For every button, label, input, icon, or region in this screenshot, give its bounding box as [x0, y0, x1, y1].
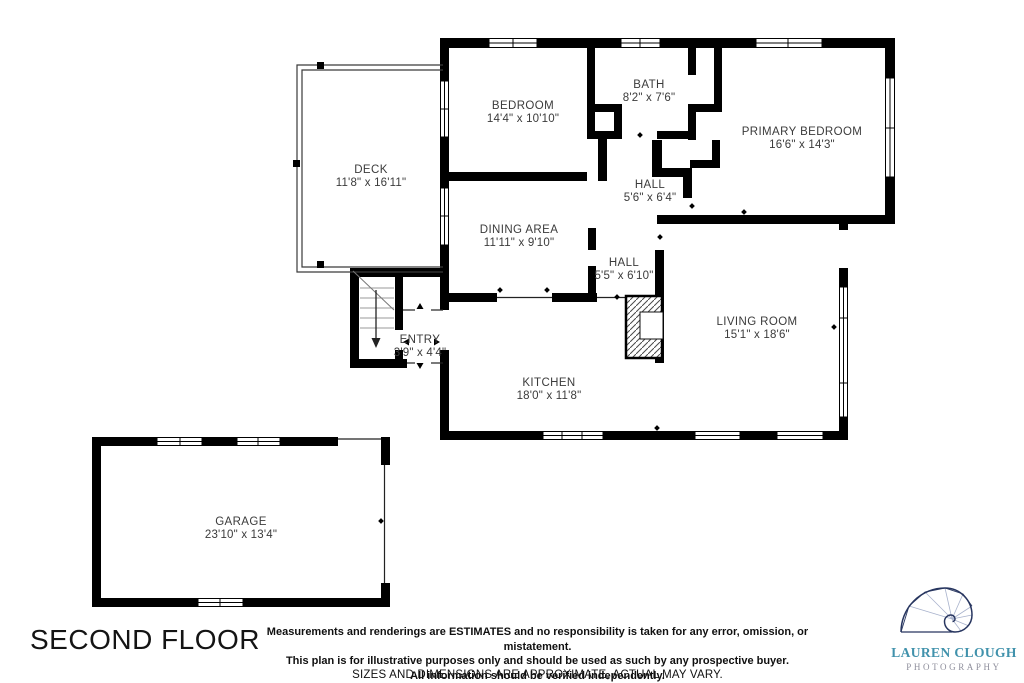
- stairs-down-arrow-icon: [372, 290, 381, 348]
- logo-subtitle: PHOTOGRAPHY: [888, 662, 1020, 672]
- windows-layer: [157, 39, 895, 607]
- page-title: SECOND FLOOR: [30, 624, 260, 656]
- floor-plan-drawing: [0, 0, 1024, 683]
- disclaimer-line-2: This plan is for illustrative purposes o…: [255, 654, 820, 669]
- disclaimer-line-1: Measurements and renderings are ESTIMATE…: [255, 625, 820, 654]
- fireplace: [626, 296, 663, 358]
- door-ticks: [93, 132, 837, 524]
- walls-layer: [92, 38, 895, 607]
- logo-name: LAUREN CLOUGH: [888, 645, 1020, 661]
- staircase: [353, 271, 394, 348]
- nautilus-spiral-icon: [895, 586, 1013, 640]
- photographer-logo: LAUREN CLOUGH PHOTOGRAPHY: [888, 586, 1020, 672]
- deck-posts: [293, 62, 324, 268]
- footer-note: SIZES AND DIMENSIONS ARE APPROXIMATE, AC…: [255, 669, 820, 681]
- deck-outline: [297, 65, 443, 272]
- floor-plan-page: DECK11'8" x 16'11"BEDROOM14'4" x 10'10"B…: [0, 0, 1024, 683]
